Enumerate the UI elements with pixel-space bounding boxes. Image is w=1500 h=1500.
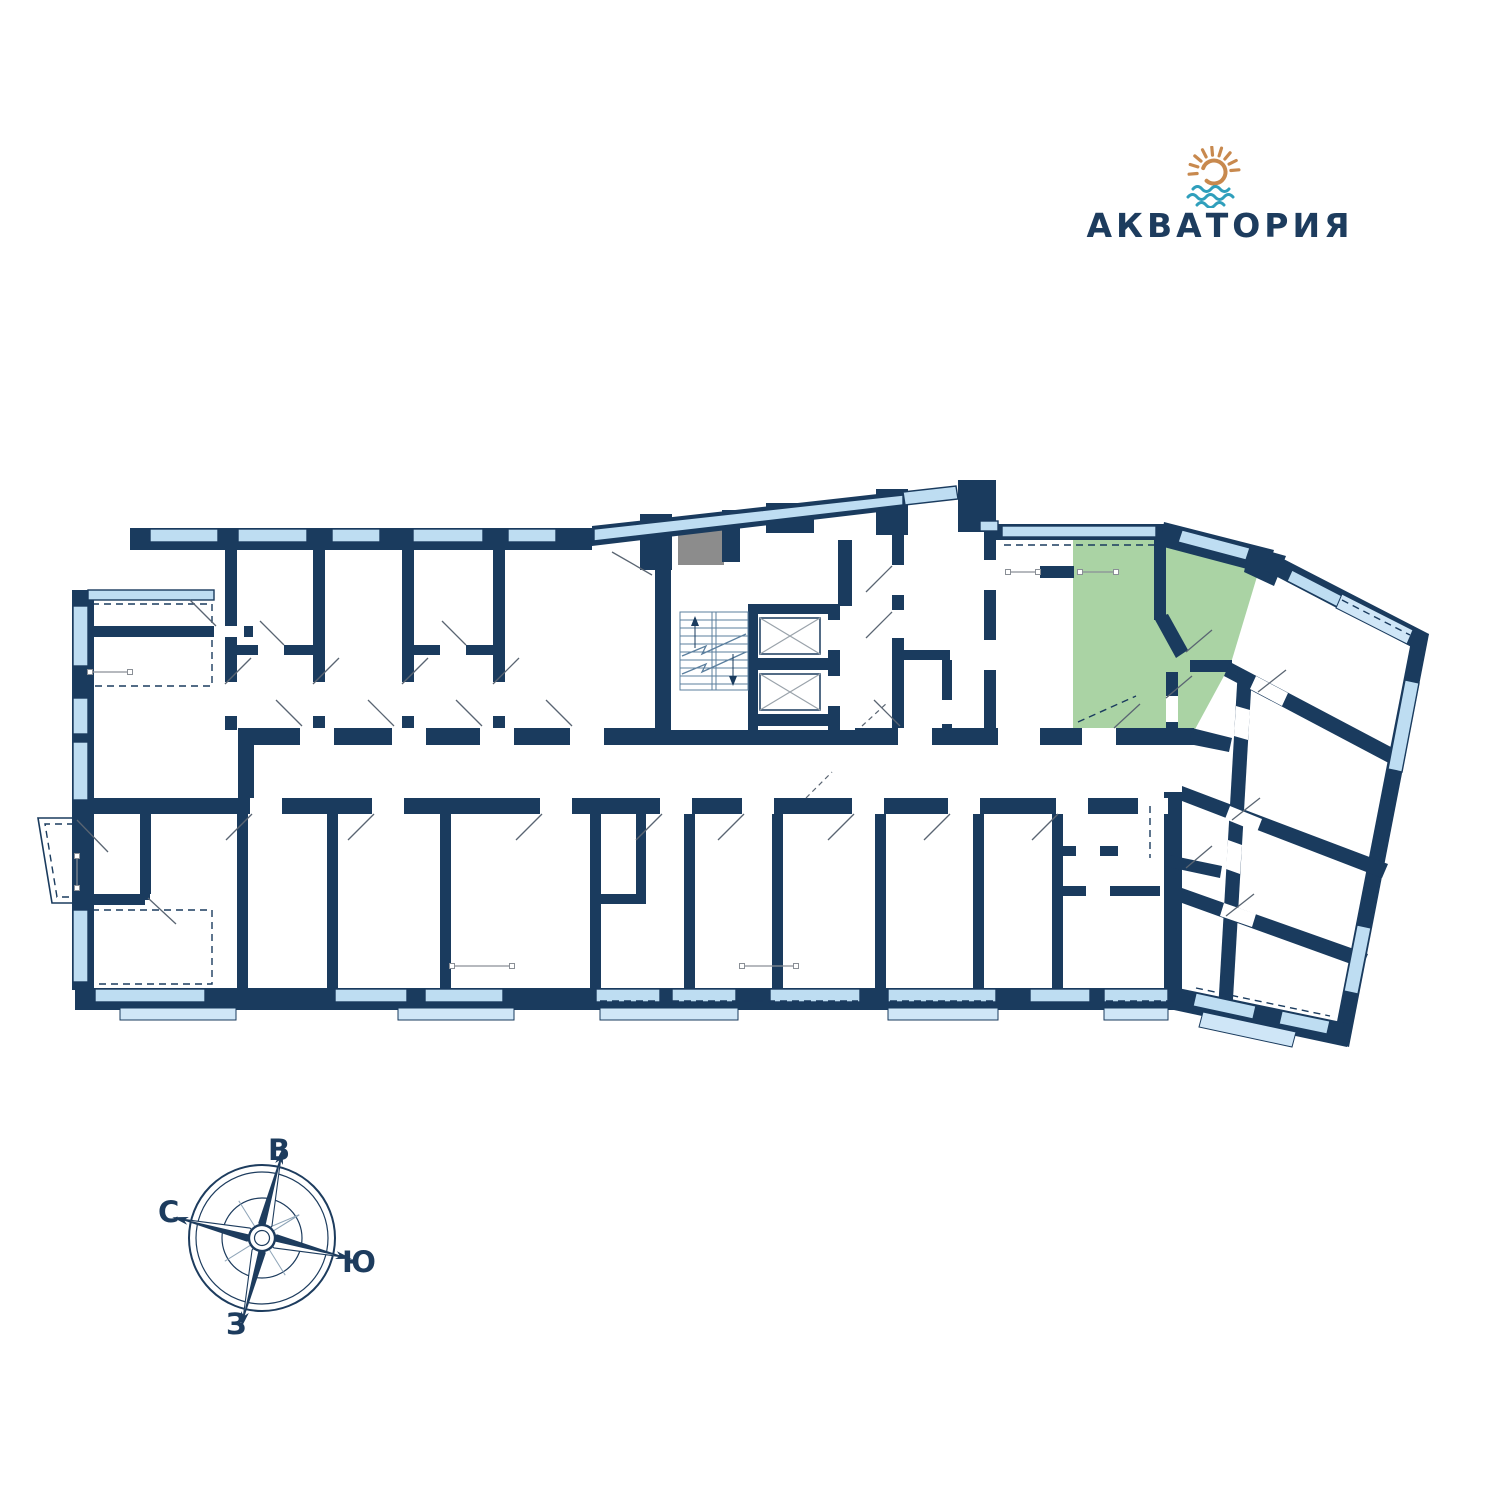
- logo-text: АКВАТОРИЯ: [1080, 206, 1360, 245]
- stairwell: [680, 612, 748, 690]
- compass-rose-icon: [162, 1138, 362, 1338]
- sun-waves-logo-icon: [1184, 146, 1244, 208]
- compass: В С Ю З: [150, 1120, 410, 1360]
- left-balcony-bay: [38, 818, 72, 903]
- elevator-1: [760, 618, 820, 654]
- compass-label-east: В: [268, 1136, 290, 1165]
- compass-label-west: З: [226, 1310, 247, 1339]
- elevator-2: [760, 674, 820, 710]
- page-canvas: АКВАТОРИЯ: [0, 0, 1500, 1500]
- compass-label-north: С: [158, 1198, 179, 1227]
- compass-label-south: Ю: [342, 1248, 376, 1277]
